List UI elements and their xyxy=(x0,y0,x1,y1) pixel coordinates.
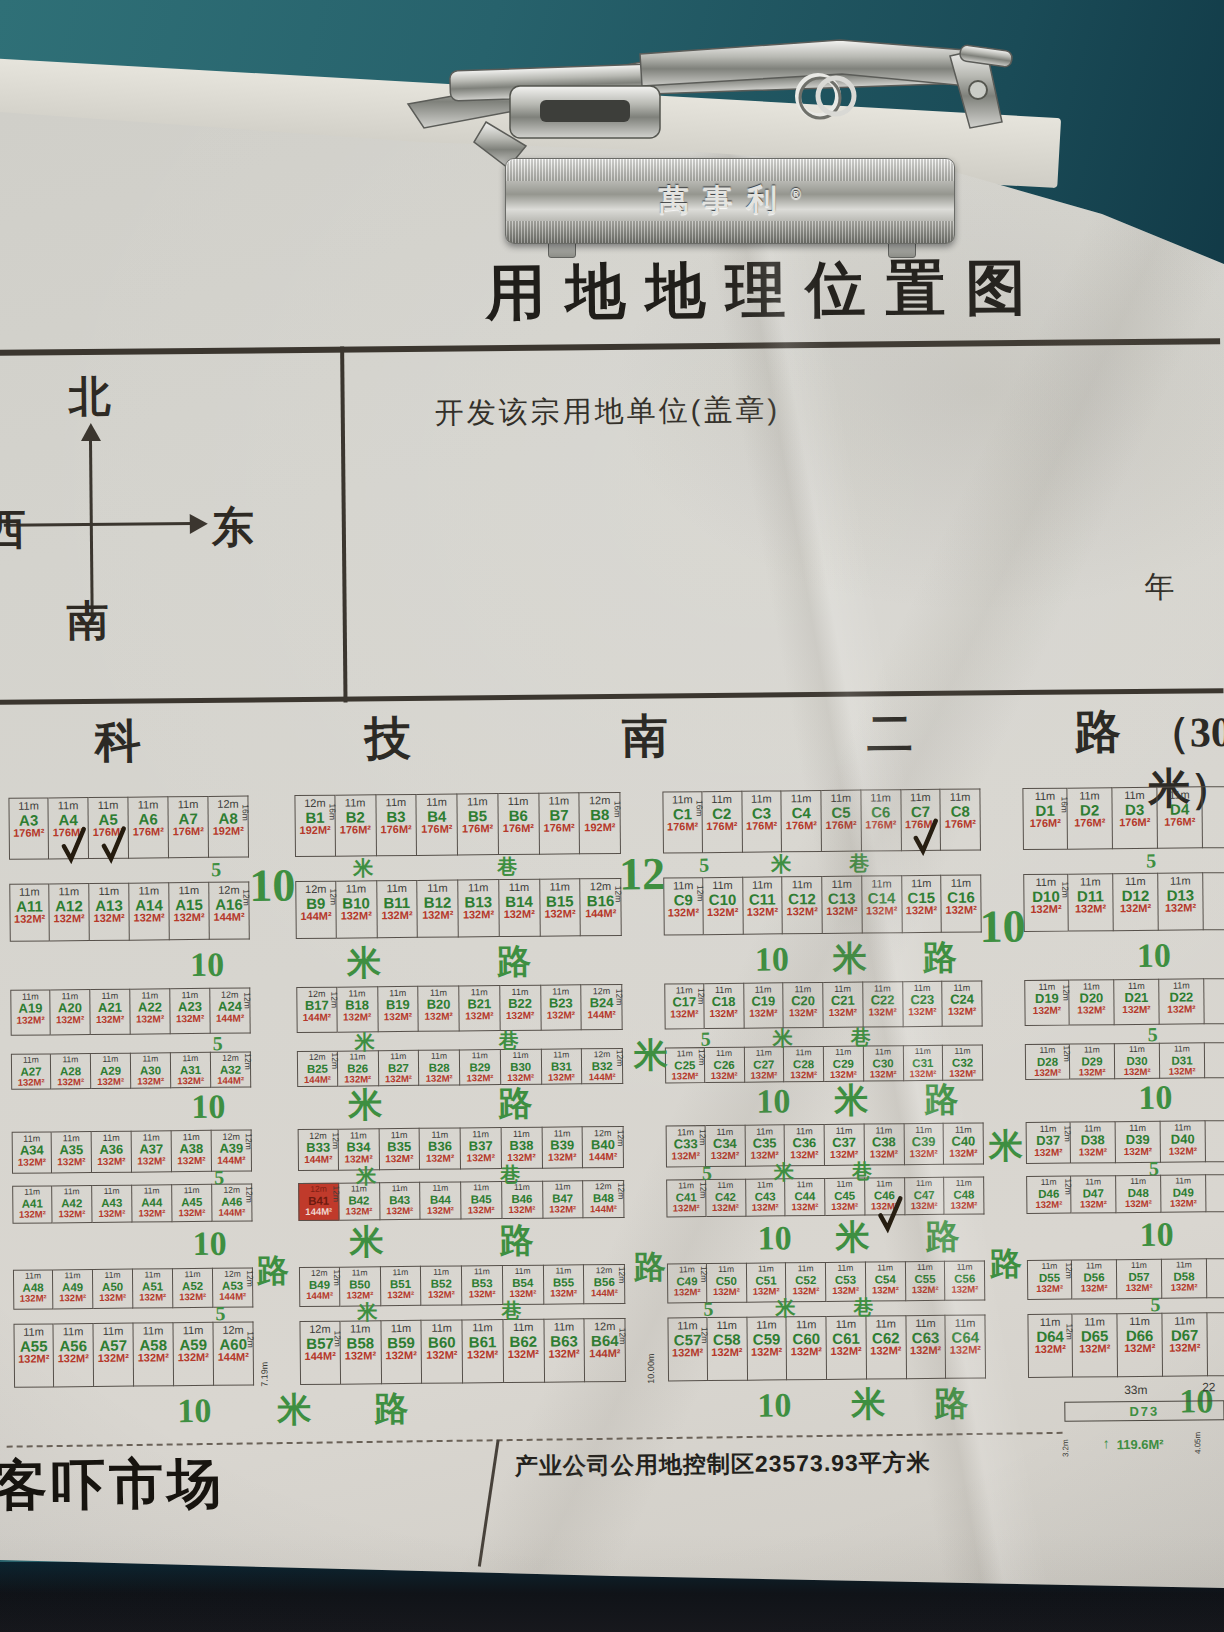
plot-width-label: 11m xyxy=(64,1187,80,1197)
plot-id-label: D10 xyxy=(1032,888,1060,904)
plot-cell-D40: 11mD40132M² xyxy=(1161,1120,1206,1162)
plot-block-D: 11mD28132M²11mD29132M²11mD30132M²11mD311… xyxy=(1025,1042,1224,1080)
plot-cell-D13: 11mD13132M² xyxy=(1158,872,1204,930)
plot-cell-clipped xyxy=(1207,1312,1224,1376)
header-divider xyxy=(340,347,347,703)
plot-area-label: 132M² xyxy=(711,1347,742,1359)
plot-area-label: 132M² xyxy=(1033,1006,1061,1017)
plot-width-label: 11m xyxy=(1131,1261,1147,1271)
plot-width-label: 11m xyxy=(757,1180,773,1190)
plot-cell-A22: 11mA22132M² xyxy=(130,988,170,1034)
plot-cell-B53: 11mB53132M² xyxy=(462,1265,503,1305)
plot-width-label: 11m xyxy=(145,1270,161,1280)
plot-width-label: 11m xyxy=(877,1263,893,1273)
plot-area-label: 144M² xyxy=(589,1348,620,1360)
plot-area-label: 132M² xyxy=(747,907,778,919)
road-label: 米 xyxy=(834,1078,868,1124)
stamp-box-label: 开发该宗用地单位(盖章) xyxy=(435,390,781,433)
plot-area-label: 132M² xyxy=(426,1350,457,1362)
plot-depth-label: 12m xyxy=(245,1270,255,1287)
plot-cell-A57: 11mA57132M² xyxy=(93,1323,134,1387)
plot-depth-label: 12m xyxy=(1064,1263,1074,1280)
photo-scene: 用地地理位置图 北 东 南 西 开发该宗用地单位(盖章) 年 科技南二路（30米… xyxy=(0,0,1224,1632)
plot-depth-label: 16m xyxy=(612,801,622,818)
vertical-road-label: 路 xyxy=(257,1249,289,1293)
plot-area-label: 132M² xyxy=(550,1288,577,1298)
plot-cell-B55: 11mB55132M² xyxy=(543,1264,584,1304)
plot-cell-A42: 11mA42132M² xyxy=(52,1185,92,1223)
plot-area-label: 144M² xyxy=(585,908,616,920)
plot-cell-B51: 11mB51132M² xyxy=(380,1266,421,1306)
plot-width-label: 11m xyxy=(717,1181,733,1191)
lane-label: 5 xyxy=(214,1166,224,1189)
plot-cell-clipped xyxy=(1205,1042,1224,1078)
plot-area-label: 132M² xyxy=(1124,1067,1151,1077)
plot-area-label: 132M² xyxy=(57,1077,84,1087)
plot-area-label: 176M² xyxy=(421,824,452,836)
plot-cell-C40: 11mC40132M² xyxy=(944,1122,984,1164)
plot-cell-B18: 11mB18132M² xyxy=(337,986,378,1032)
lane-label: 巷 xyxy=(851,1024,871,1051)
plot-cell-B63: 11mB63132M² xyxy=(544,1318,585,1382)
plot-id-label: D66 xyxy=(1126,1327,1154,1343)
plot-id-label: D64 xyxy=(1036,1328,1064,1344)
lane-label: 米 xyxy=(773,1025,793,1052)
plot-id-label: B57 xyxy=(306,1335,334,1351)
plot-area-label: 132M² xyxy=(750,1070,777,1080)
plot-width-label: 11m xyxy=(548,794,569,807)
vertical-road-label: 路 xyxy=(990,1242,1022,1286)
plot-cell-C59: 11mC59132M² xyxy=(747,1316,787,1380)
plot-area-label: 132M² xyxy=(1034,1148,1062,1159)
plot-width-label: 12m xyxy=(309,1053,326,1063)
plot-width-label: 11m xyxy=(791,792,812,805)
plot-cell-D11: 11mD11132M² xyxy=(1068,873,1114,931)
plot-depth-label: 12m xyxy=(697,1049,707,1066)
plot-cell-C13: 11mC13132M² xyxy=(822,876,862,934)
plot-area-label: 132M² xyxy=(1122,1005,1150,1016)
lane-label: 5 xyxy=(703,1298,713,1321)
plot-width-label: 11m xyxy=(138,798,159,811)
plot-id-label: A3 xyxy=(19,812,38,828)
lane-label: 5 xyxy=(701,1028,711,1051)
plot-area-label: 132M² xyxy=(547,1010,575,1021)
plot-area-label: 132M² xyxy=(791,1346,822,1358)
header-top-border xyxy=(0,338,1220,356)
plot-area-label: 132M² xyxy=(791,1202,818,1212)
plot-id-label: A60 xyxy=(219,1336,247,1352)
plot-block-C: 11mC33132M²11mC34132M²11mC35132M²11mC361… xyxy=(666,1122,984,1167)
plot-area-label: 132M² xyxy=(469,1289,496,1299)
plot-width-label: 12m xyxy=(596,1266,613,1276)
plot-area-label: 132M² xyxy=(950,1345,981,1357)
plot-area-label: 132M² xyxy=(713,1287,740,1297)
plot-area-label: 176M² xyxy=(173,826,204,838)
plot-block-C: 11mC41132M²11mC42132M²11mC43132M²11mC441… xyxy=(666,1176,984,1217)
plot-width-label: 11m xyxy=(835,1048,851,1058)
plot-width-label: 11m xyxy=(672,793,693,806)
plot-area-label: 132M² xyxy=(386,1350,417,1362)
plot-area-label: 144M² xyxy=(304,1155,332,1166)
plot-area-label: 132M² xyxy=(97,1077,124,1087)
plot-area-label: 132M² xyxy=(829,1008,857,1019)
plot-block-D: 11mD55132M²11mD56132M²11mD57132M²11mD581… xyxy=(1027,1258,1224,1300)
plot-area-label: 132M² xyxy=(98,1209,125,1219)
plot-area-label: 144M² xyxy=(217,1075,244,1085)
plot-area-label: 132M² xyxy=(1120,903,1151,915)
plot-area-label: 144M² xyxy=(216,1014,244,1025)
plot-width-label: 11m xyxy=(58,885,79,898)
plot-width-label: 11m xyxy=(427,882,448,895)
plot-width-label: 11m xyxy=(1085,1177,1101,1187)
plot-width-label: 12m xyxy=(222,1324,244,1337)
plot-width-label: 11m xyxy=(1080,875,1101,888)
lane-label: 米 xyxy=(771,851,791,878)
plot-area-label: 176M² xyxy=(746,821,777,833)
plot-cell-A49: 11mA49132M² xyxy=(53,1269,93,1309)
compass-west-label: 西 xyxy=(0,502,26,558)
plot-area-label: 132M² xyxy=(911,1201,938,1211)
road-label: 路 xyxy=(499,1218,533,1264)
plot-cell-B15: 11mB15132M² xyxy=(540,878,581,936)
plot-area-label: 132M² xyxy=(16,1015,44,1026)
plot-width-label: 11m xyxy=(554,1320,575,1333)
lane-label: 米 xyxy=(355,1029,375,1056)
plot-cell-A45: 11mA45132M² xyxy=(172,1184,212,1222)
plot-width-label: 11m xyxy=(1176,1260,1192,1270)
plot-cell-B2: 11mB2176M² xyxy=(335,794,376,856)
clip-knurl-texture-bottom xyxy=(506,221,954,243)
plot-cell-C3: 11mC3176M² xyxy=(742,790,782,852)
plot-width-label: 11m xyxy=(1174,1314,1195,1327)
plot-width-label: 11m xyxy=(62,1055,78,1065)
plot-cell-A30: 11mA30132M² xyxy=(131,1052,171,1088)
plot-block-B: 12mB33144M²11mB34132M²11mB35132M²11mB361… xyxy=(298,1126,624,1171)
plot-id-label: A12 xyxy=(55,898,83,914)
plot-width-label: 12m xyxy=(224,1270,241,1280)
top-road-char: 南 xyxy=(622,705,669,767)
plot-area-label: 132M² xyxy=(870,1346,901,1358)
plot-width-label: 11m xyxy=(143,1324,164,1337)
plot-block-B: 12mB49144M²11mB50132M²11mB51132M²11mB521… xyxy=(299,1264,625,1307)
plot-area-label: 132M² xyxy=(508,1349,539,1361)
road-label: 路 xyxy=(924,1077,958,1123)
plot-area-label: 132M² xyxy=(424,1012,452,1023)
plot-cell-B44: 11mB44132M² xyxy=(420,1181,461,1219)
plot-cell-C8: 11mC8176M² xyxy=(941,788,981,850)
plot-cell-C19: 11mC19132M² xyxy=(744,982,784,1028)
plot-area-label: 132M² xyxy=(1081,1283,1108,1293)
plot-area-label: 132M² xyxy=(98,1353,129,1365)
plot-area-label: 132M² xyxy=(826,906,857,918)
vertical-road-label: 10 xyxy=(249,859,296,912)
plot-area-label: 176M² xyxy=(462,824,493,836)
plot-cell-C5: 11mC5176M² xyxy=(821,790,861,852)
plot-width-label: 11m xyxy=(910,791,931,804)
plot-cell-A51: 11mA51132M² xyxy=(133,1268,173,1308)
plot-area-label: 176M² xyxy=(133,827,164,839)
plot-depth-label: 12m xyxy=(243,1053,253,1070)
plot-area-label: 132M² xyxy=(866,906,897,918)
plot-cell-B20: 11mB20132M² xyxy=(418,985,459,1031)
plot-width-label: 11m xyxy=(673,879,694,892)
plot-width-label: 11m xyxy=(25,1272,41,1282)
plot-cell-A6: 11mA6176M² xyxy=(128,796,169,858)
compass-east-label: 东 xyxy=(212,499,255,555)
plot-depth-label: 12m xyxy=(1061,984,1071,1001)
plot-id-label: B59 xyxy=(387,1335,415,1351)
plot-id-label: C1 xyxy=(673,806,692,822)
plot-width-label: 11m xyxy=(386,796,407,809)
plot-id-label: B61 xyxy=(469,1334,497,1350)
plot-width-label: 11m xyxy=(1170,874,1191,887)
plot-id-label: A7 xyxy=(178,811,197,827)
plot-cell-C16: 11mC16132M² xyxy=(941,874,981,932)
plot-area-label: 132M² xyxy=(96,1015,124,1026)
plot-width-label: 11m xyxy=(185,1270,201,1280)
plot-area-label: 132M² xyxy=(949,1148,977,1159)
plot-id-label: C3 xyxy=(752,805,771,821)
plot-id-label: D11 xyxy=(1077,888,1104,904)
plot-grid: 11mA3176M²11mA4176M²11mA5176M²11mA6176M²… xyxy=(0,0,1217,6)
plot-area-label: 132M² xyxy=(99,1293,126,1303)
plot-id-label: A57 xyxy=(99,1337,127,1353)
road-label: 米 xyxy=(851,1381,885,1427)
top-road-char: 科 xyxy=(95,711,142,773)
plot-cell-C6: 11mC6176M² xyxy=(861,789,901,851)
lane-label: 5 xyxy=(215,1302,225,1325)
plot-width-label: 11m xyxy=(1129,1315,1150,1328)
handwritten-checkmark xyxy=(61,826,87,864)
plot-area-label: 132M² xyxy=(59,1293,86,1303)
plot-area-label: 132M² xyxy=(1170,1198,1197,1208)
plot-width-label: 12m xyxy=(590,880,612,893)
plot-area-label: 132M² xyxy=(139,1292,166,1302)
plot-width-label: 11m xyxy=(875,1047,891,1057)
plot-area-label: 132M² xyxy=(946,905,977,917)
plot-cell-D29: 11mD29132M² xyxy=(1070,1043,1115,1079)
plot-id-label: A14 xyxy=(135,897,163,913)
plot-area-label: 132M² xyxy=(97,1157,125,1168)
plot-width-label: 11m xyxy=(1129,1045,1145,1055)
plot-id-label: B63 xyxy=(550,1333,578,1349)
plot-area-label: 192M² xyxy=(584,822,615,834)
plot-width-label: 12m xyxy=(594,1050,611,1060)
plot-id-label: D3 xyxy=(1125,802,1144,818)
plot-width-label: 11m xyxy=(467,795,488,808)
plot-area-label: 132M² xyxy=(343,1012,371,1023)
plot-id-label: D4 xyxy=(1170,801,1189,817)
plot-cell-B59: 11mB59132M² xyxy=(381,1320,422,1384)
plot-cell-B61: 11mB61132M² xyxy=(462,1319,503,1383)
plot-area-label: 176M² xyxy=(1119,817,1150,829)
plot-width-label: 11m xyxy=(346,882,367,895)
plot-width-label: 11m xyxy=(955,1047,971,1057)
plot-width-label: 11m xyxy=(468,881,489,894)
plot-depth-label: 12m xyxy=(1063,1125,1073,1142)
plot-cell-B11: 11mB11132M² xyxy=(377,880,418,938)
plot-width-label: 11m xyxy=(509,881,530,894)
plot-block-B: 12mB1192M²11mB2176M²11mB3176M²11mB4176M²… xyxy=(294,792,621,857)
plot-id-label: B6 xyxy=(509,807,528,823)
plot-strip-d73: D73 xyxy=(1064,1400,1224,1422)
plot-width-label: 11m xyxy=(98,799,119,812)
plot-depth-label: 12m xyxy=(615,1050,625,1067)
plot-cell-B22: 11mB22132M² xyxy=(500,985,541,1031)
compass-south-label: 南 xyxy=(66,593,109,649)
plot-width-label: 11m xyxy=(104,1187,120,1197)
plot-area-label: 132M² xyxy=(341,911,372,923)
plot-cell-B60: 11mB60132M² xyxy=(422,1319,463,1383)
plot-area-label: 132M² xyxy=(548,1072,575,1082)
plot-block-C: 11mC57132M²11mC58132M²11mC59132M²11mC601… xyxy=(667,1314,986,1381)
plot-cell-A12: 11mA12132M² xyxy=(49,883,90,941)
plot-cell-D48: 11mD48132M² xyxy=(1116,1175,1161,1213)
plot-area-label: 144M² xyxy=(218,1352,249,1364)
plot-width-label: 11m xyxy=(138,884,159,897)
plot-id-label: B60 xyxy=(428,1334,456,1350)
road-label: 10 xyxy=(1137,937,1171,975)
plot-width-label: 11m xyxy=(752,878,773,891)
plot-width-label: 11m xyxy=(711,793,732,806)
plot-area-label: 132M² xyxy=(384,1012,412,1023)
plot-width-label: 11m xyxy=(758,1264,774,1274)
plot-block-D: 11mD37132M²11mD38132M²11mD39132M²11mD401… xyxy=(1026,1120,1224,1164)
plot-area-label: 176M² xyxy=(667,822,698,834)
plot-cell-B28: 11mB28132M² xyxy=(419,1049,460,1085)
plot-cell-C22: 11mC22132M² xyxy=(863,981,903,1027)
plot-width-label: 11m xyxy=(392,1184,408,1194)
plot-width-label: 11m xyxy=(18,800,39,813)
plot-area-label: 132M² xyxy=(428,1289,455,1299)
plot-area-label: 176M² xyxy=(865,820,896,832)
plot-cell-D20: 11mD20132M² xyxy=(1069,979,1114,1025)
dimension-left: 7.19m xyxy=(259,1362,269,1387)
lane-label: 巷 xyxy=(500,1161,520,1188)
vertical-road-label: 米 xyxy=(989,1123,1023,1169)
plot-area-label: 132M² xyxy=(133,913,164,925)
plot-depth-label: 12m xyxy=(242,992,252,1009)
plot-id-label: C60 xyxy=(792,1331,820,1347)
plot-block-D: 11mD46132M²11mD47132M²11mD48132M²11mD491… xyxy=(1026,1174,1224,1214)
plot-cell-C47: 11mC47132M² xyxy=(905,1177,945,1215)
plot-width-label: 11m xyxy=(392,1268,408,1278)
plot-cell-A31: 11mA31132M² xyxy=(171,1052,211,1088)
lane-label: 巷 xyxy=(853,1294,873,1321)
plot-id-label: B58 xyxy=(346,1335,374,1351)
plot-area-label: 132M² xyxy=(749,1008,777,1019)
plot-cell-D56: 11mD56132M² xyxy=(1072,1259,1117,1299)
plot-area-label: 132M² xyxy=(868,1007,896,1018)
plot-id-label: A6 xyxy=(138,811,157,827)
plot-area-label: 132M² xyxy=(787,906,818,918)
plot-id-label: A58 xyxy=(139,1337,167,1353)
road-label: 10 xyxy=(758,1219,792,1257)
plot-cell-C4: 11mC4176M² xyxy=(782,790,822,852)
plot-area-label: 132M² xyxy=(53,913,84,925)
plot-block-D: 11mD64132M²11mD65132M²11mD66132M²11mD671… xyxy=(1027,1312,1224,1378)
plot-cell-B7: 11mB7176M² xyxy=(539,792,580,854)
plot-area-label: 132M² xyxy=(752,1202,779,1212)
plot-cell-B39: 11mB39132M² xyxy=(542,1126,583,1168)
plot-depth-label: 12m xyxy=(618,1328,628,1345)
plot-width-label: 11m xyxy=(352,1268,368,1278)
plot-id-label: A11 xyxy=(16,898,43,914)
plot-area-label: 132M² xyxy=(345,1351,376,1363)
plot-area-label: 132M² xyxy=(831,1201,858,1211)
plot-depth-label: 12m xyxy=(614,988,624,1005)
plot-cell-B14: 11mB14132M² xyxy=(499,879,540,937)
plot-block-C: 11mC9132M²11mC10132M²11mC11132M²11mC1213… xyxy=(663,874,982,935)
plot-cell-B6: 11mB6176M² xyxy=(498,793,539,855)
plot-cell-D4: 11mD4176M² xyxy=(1157,786,1203,848)
plot-area-label: 132M² xyxy=(789,1008,817,1019)
vertical-road-label: 路 xyxy=(634,1246,666,1290)
plot-id-label: C9 xyxy=(674,892,693,908)
plot-cell-A38: 11mA38132M² xyxy=(172,1130,212,1172)
plot-area-label: 132M² xyxy=(177,1156,205,1167)
plot-width-label: 12m xyxy=(223,1186,240,1196)
plot-area-label: 132M² xyxy=(1030,904,1061,916)
plot-area-label: 144M² xyxy=(591,1288,618,1298)
plot-id-label: B5 xyxy=(468,808,487,824)
plot-width-label: 11m xyxy=(871,877,892,890)
plot-area-label: 132M² xyxy=(426,1073,453,1083)
plot-width-label: 11m xyxy=(390,1052,406,1062)
plot-width-label: 11m xyxy=(515,1267,531,1277)
plot-area-label: 144M² xyxy=(219,1291,246,1301)
plot-area-label: 132M² xyxy=(178,1208,205,1218)
plot-area-label: 176M² xyxy=(340,825,371,837)
plot-width-label: 11m xyxy=(870,791,891,804)
plot-area-label: 132M² xyxy=(948,1006,976,1017)
plot-area-label: 132M² xyxy=(670,1009,698,1020)
plot-id-label: B1 xyxy=(305,809,324,825)
plot-area-label: 132M² xyxy=(951,1284,978,1294)
top-road-char: 路 xyxy=(1075,701,1122,763)
plot-id-label: C13 xyxy=(828,890,856,906)
plot-id-label: A56 xyxy=(59,1338,87,1354)
plot-width-label: 11m xyxy=(911,877,932,890)
plot-width-label: 11m xyxy=(1086,1261,1102,1271)
lane-label: 5 xyxy=(1150,1293,1160,1316)
plot-depth-label: 16m xyxy=(694,800,704,817)
plot-block-A: 11mA55132M²11mA56132M²11mA57132M²11mA581… xyxy=(13,1321,254,1387)
plot-cell-C31: 11mC31132M² xyxy=(903,1045,943,1081)
plot-depth-label: 12m xyxy=(616,1129,626,1146)
road-label: 10 xyxy=(190,946,224,984)
plot-width-label: 11m xyxy=(144,1186,160,1196)
plot-width-label: 11m xyxy=(472,1051,488,1061)
plot-width-label: 12m xyxy=(304,797,326,810)
plot-cell-A3: 11mA3176M² xyxy=(8,797,49,859)
plot-width-label: 11m xyxy=(837,1264,853,1274)
plot-cell-B52: 11mB52132M² xyxy=(421,1265,462,1305)
plot-area-label: 132M² xyxy=(386,1206,413,1216)
year-label: 年 xyxy=(1144,567,1174,608)
plot-cell-A55: 11mA55132M² xyxy=(13,1323,54,1387)
plot-width-label: 11m xyxy=(1035,790,1056,803)
plot-id-label: B13 xyxy=(464,894,492,910)
plot-width-label: 11m xyxy=(797,1180,813,1190)
plot-area-label: 132M² xyxy=(707,907,738,919)
plot-width-label: 11m xyxy=(508,795,529,808)
plot-area-label: 132M² xyxy=(385,1154,413,1165)
plot-depth-label: 12m xyxy=(332,1270,342,1287)
plot-cell-A56: 11mA56132M² xyxy=(53,1323,94,1387)
plot-block-A: 11mA11132M²11mA12132M²11mA13132M²11mA141… xyxy=(9,881,250,941)
plot-area-label: 132M² xyxy=(1124,1147,1152,1158)
